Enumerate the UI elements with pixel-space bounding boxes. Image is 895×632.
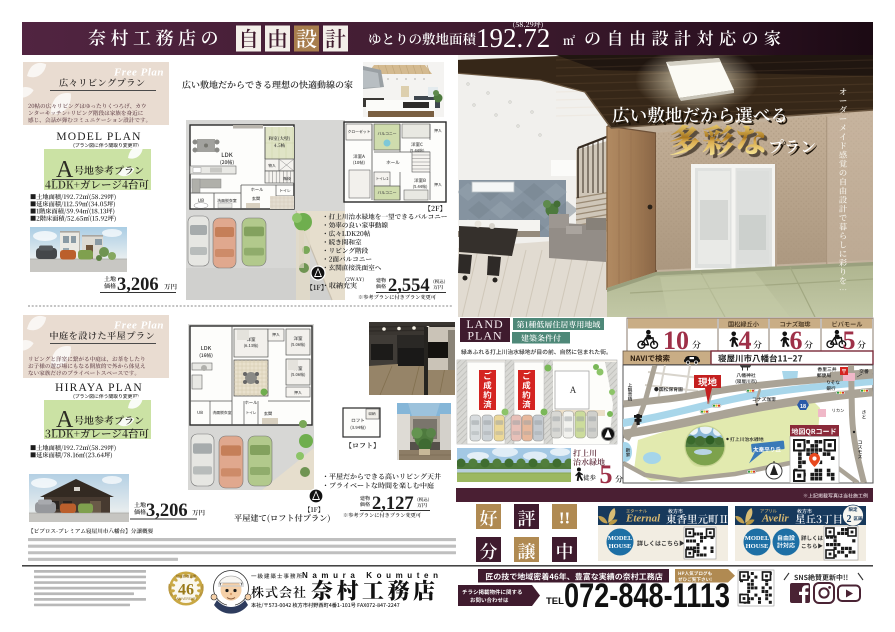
- svg-text:192.72: 192.72: [476, 23, 550, 53]
- svg-text:A: A: [570, 385, 577, 395]
- svg-text:PLAN: PLAN: [467, 329, 502, 343]
- svg-text:46: 46: [178, 582, 194, 599]
- svg-text:!!: !!: [559, 509, 570, 528]
- svg-text:MODEL: MODEL: [745, 535, 770, 542]
- svg-text:Avelir: Avelir: [761, 513, 789, 525]
- svg-text:Namura Koumuten: Namura Koumuten: [302, 571, 438, 580]
- svg-text:Free Plan: Free Plan: [113, 320, 164, 332]
- svg-text:18: 18: [800, 404, 806, 410]
- svg-text:TEL: TEL: [546, 596, 564, 607]
- svg-text:2,127: 2,127: [372, 494, 414, 514]
- svg-text:2: 2: [847, 514, 852, 525]
- svg-text:Eternal: Eternal: [625, 513, 661, 525]
- svg-text:3,206: 3,206: [146, 501, 188, 521]
- svg-text:Free Plan: Free Plan: [113, 67, 164, 79]
- svg-text:HOUSE: HOUSE: [609, 543, 632, 550]
- svg-text:HIRAYA PLAN: HIRAYA PLAN: [55, 382, 143, 394]
- svg-text:5: 5: [600, 460, 613, 489]
- svg-text:072-848-1113: 072-848-1113: [564, 577, 730, 615]
- svg-text:MODEL PLAN: MODEL PLAN: [56, 131, 141, 143]
- svg-text:2,554: 2,554: [388, 276, 430, 296]
- svg-text:ANNIVERSARY: ANNIVERSARY: [175, 597, 199, 601]
- svg-text:HOUSE: HOUSE: [746, 543, 769, 550]
- svg-text:3,206: 3,206: [117, 275, 159, 295]
- svg-text:MODEL: MODEL: [608, 535, 633, 542]
